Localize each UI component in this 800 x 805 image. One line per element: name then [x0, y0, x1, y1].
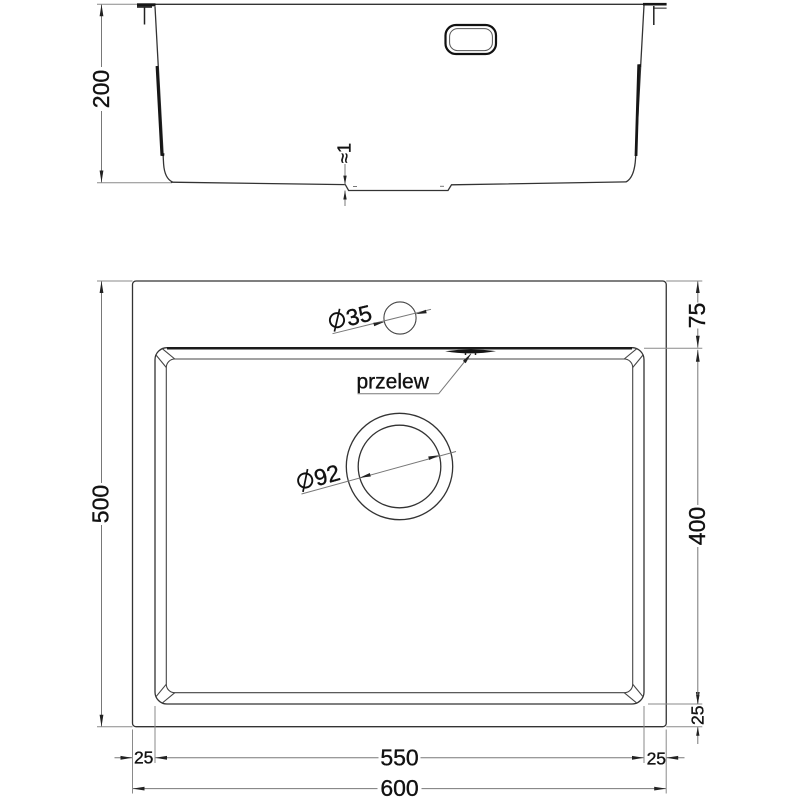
svg-text:400: 400 [684, 507, 710, 545]
svg-text:200: 200 [88, 70, 114, 108]
svg-text:35: 35 [343, 300, 374, 331]
svg-text:przelew: przelew [357, 371, 430, 394]
svg-text:92: 92 [311, 459, 343, 491]
svg-text:≈1: ≈1 [333, 143, 354, 163]
svg-text:75: 75 [684, 303, 710, 329]
svg-text:500: 500 [88, 485, 114, 523]
svg-text:25: 25 [134, 748, 153, 768]
svg-text:550: 550 [380, 744, 418, 770]
svg-text:25: 25 [647, 748, 666, 768]
svg-text:600: 600 [380, 775, 418, 800]
svg-text:25: 25 [687, 706, 707, 725]
